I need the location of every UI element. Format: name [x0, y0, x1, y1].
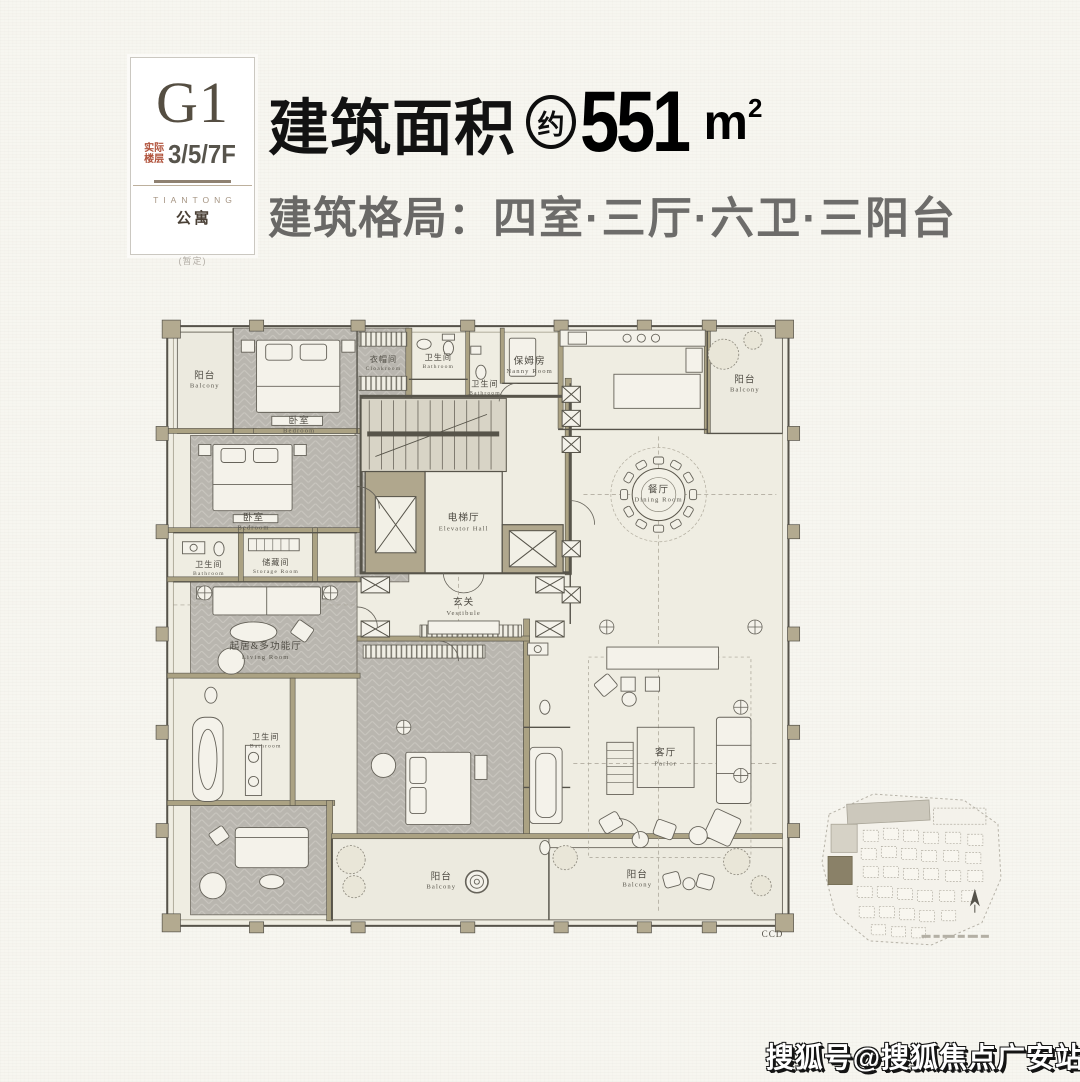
- badge-divider-thick: [154, 180, 230, 183]
- label-bath-top-zh: 卫生间: [425, 352, 452, 362]
- area-line: 建筑面积 约 551 m2: [268, 74, 1028, 170]
- floor-value: 3/5/7F: [168, 139, 236, 170]
- label-nanny-en: Nanny Room: [506, 368, 552, 375]
- label-elevator-hall-en: Elevator Hall: [439, 526, 489, 533]
- label-bath-top2-zh: 卫生间: [471, 378, 498, 388]
- label-bedroom-top-en: Bedroom: [283, 427, 315, 434]
- area-label: 建筑面积: [268, 78, 516, 167]
- area-unit: m2: [704, 97, 763, 147]
- badge-note: (暂定): [131, 254, 254, 267]
- headline: 建筑面积 约 551 m2 建筑格局： 四室·三厅·六卫·三阳台: [268, 74, 1028, 246]
- elevator-b-icon: [509, 531, 556, 567]
- label-bath-mid-zh: 卫生间: [195, 559, 222, 569]
- label-dining-en: Dining Room: [634, 497, 682, 504]
- site-current-building: [828, 856, 852, 884]
- floor-label: 实际楼层: [143, 144, 165, 166]
- label-balcony-tl-zh: 阳台: [194, 369, 215, 381]
- elevator-a-icon: [375, 497, 416, 553]
- label-balcony-bc-zh: 阳台: [431, 871, 452, 883]
- floor-plan-drawing: 阳台 Balcony 卧室 Bedroom 衣帽间 Cloakroom 卫生间 …: [152, 286, 822, 978]
- label-cloakroom-zh: 衣帽间: [370, 354, 397, 364]
- badge-divider-thin: [133, 185, 251, 186]
- label-living-en: Living Room: [242, 654, 290, 661]
- site-map-thumbnail: [810, 782, 1018, 968]
- stair-rail: [367, 431, 499, 436]
- layout-value: 四室·三厅·六卫·三阳台: [493, 182, 957, 246]
- bed-left: [199, 444, 307, 522]
- label-storage-en: Storage Room: [253, 569, 299, 575]
- floor-plan: 阳台 Balcony 卧室 Bedroom 衣帽间 Cloakroom 卫生间 …: [152, 286, 822, 978]
- label-elevator-hall-zh: 电梯厅: [448, 512, 480, 524]
- label-cloakroom-en: Cloakroom: [366, 366, 402, 372]
- floor-info: 实际楼层 3/5/7F: [131, 139, 254, 170]
- label-dining-zh: 餐厅: [648, 484, 669, 496]
- approx-mark: 约: [538, 103, 565, 142]
- label-vestibule-en: Vestibule: [446, 610, 481, 617]
- label-balcony-bc-en: Balcony: [426, 884, 456, 891]
- brand-name-en: TIANTONG: [131, 195, 254, 205]
- console-table: [428, 621, 499, 634]
- area-unit-exponent: 2: [748, 93, 762, 123]
- label-living-zh: 起居&多功能厅: [229, 640, 301, 652]
- label-bath-low-en: Bathroom: [250, 743, 282, 749]
- area-value: 551: [580, 79, 688, 165]
- unit-badge: G1 实际楼层 3/5/7F TIANTONG 公寓 (暂定): [130, 57, 255, 255]
- label-balcony-br-zh: 阳台: [627, 869, 648, 881]
- label-nanny-zh: 保姆房: [514, 355, 546, 367]
- label-parlor-zh: 客厅: [655, 746, 676, 758]
- label-storage-zh: 储藏间: [262, 557, 289, 567]
- label-bedroom-left-en: Bedroom: [237, 525, 269, 532]
- label-vestibule-zh: 玄关: [453, 596, 474, 608]
- label-balcony-br-en: Balcony: [622, 882, 652, 889]
- unit-code: G1: [131, 74, 254, 132]
- label-bath-mid-en: Bathroom: [193, 571, 225, 577]
- site-map-drawing: [810, 782, 1018, 968]
- label-bedroom-left-zh: 卧室: [243, 512, 264, 524]
- label-balcony-tl-en: Balcony: [190, 382, 220, 389]
- bed-top: [241, 340, 355, 425]
- label-balcony-tr-zh: 阳台: [734, 373, 755, 385]
- brand-name-cn: 公寓: [131, 207, 254, 228]
- label-balcony-tr-en: Balcony: [730, 386, 760, 393]
- layout-line: 建筑格局： 四室·三厅·六卫·三阳台: [268, 182, 1028, 246]
- label-bath-top2-en: Bathroom: [469, 390, 501, 396]
- layout-label: 建筑格局：: [268, 182, 493, 246]
- watermark: 搜狐号@搜狐焦点广安站: [766, 1036, 1080, 1076]
- label-parlor-en: Parlor: [654, 760, 677, 767]
- approx-circle-icon: 约: [526, 95, 576, 149]
- label-bedroom-top-zh: 卧室: [289, 414, 310, 426]
- designer-signature: CCD: [762, 929, 784, 939]
- label-bath-low-zh: 卫生间: [252, 731, 279, 741]
- label-bath-top-en: Bathroom: [422, 364, 454, 370]
